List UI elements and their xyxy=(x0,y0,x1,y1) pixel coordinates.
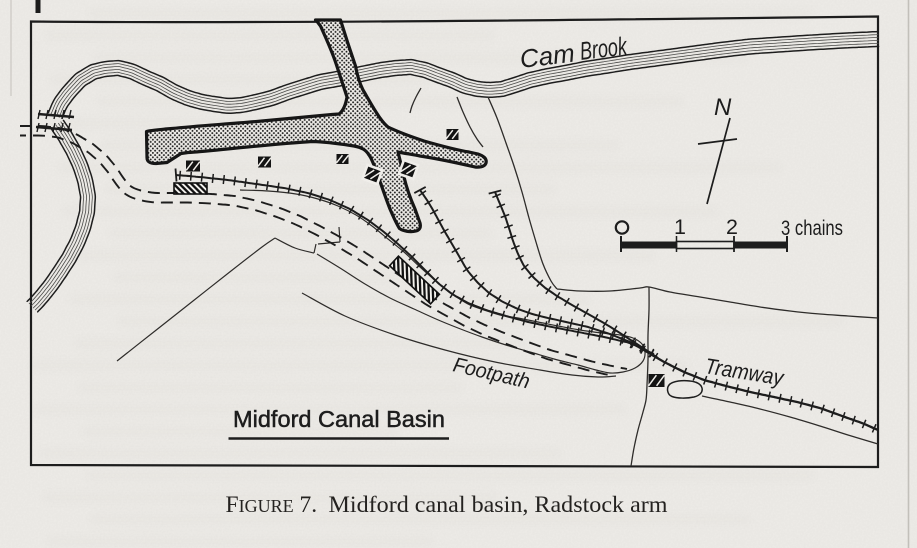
svg-text:1: 1 xyxy=(674,215,686,239)
svg-text:Brook: Brook xyxy=(578,32,629,66)
svg-text:N: N xyxy=(714,94,732,121)
svg-text:2: 2 xyxy=(726,215,738,239)
svg-text:FIGURE 7.: FIGURE 7. xyxy=(226,492,318,518)
svg-text:Midford canal basin, Radstock: Midford canal basin, Radstock arm xyxy=(329,492,668,518)
svg-text:Midford Canal Basin: Midford Canal Basin xyxy=(233,406,445,432)
svg-text:3 chains: 3 chains xyxy=(781,217,843,240)
